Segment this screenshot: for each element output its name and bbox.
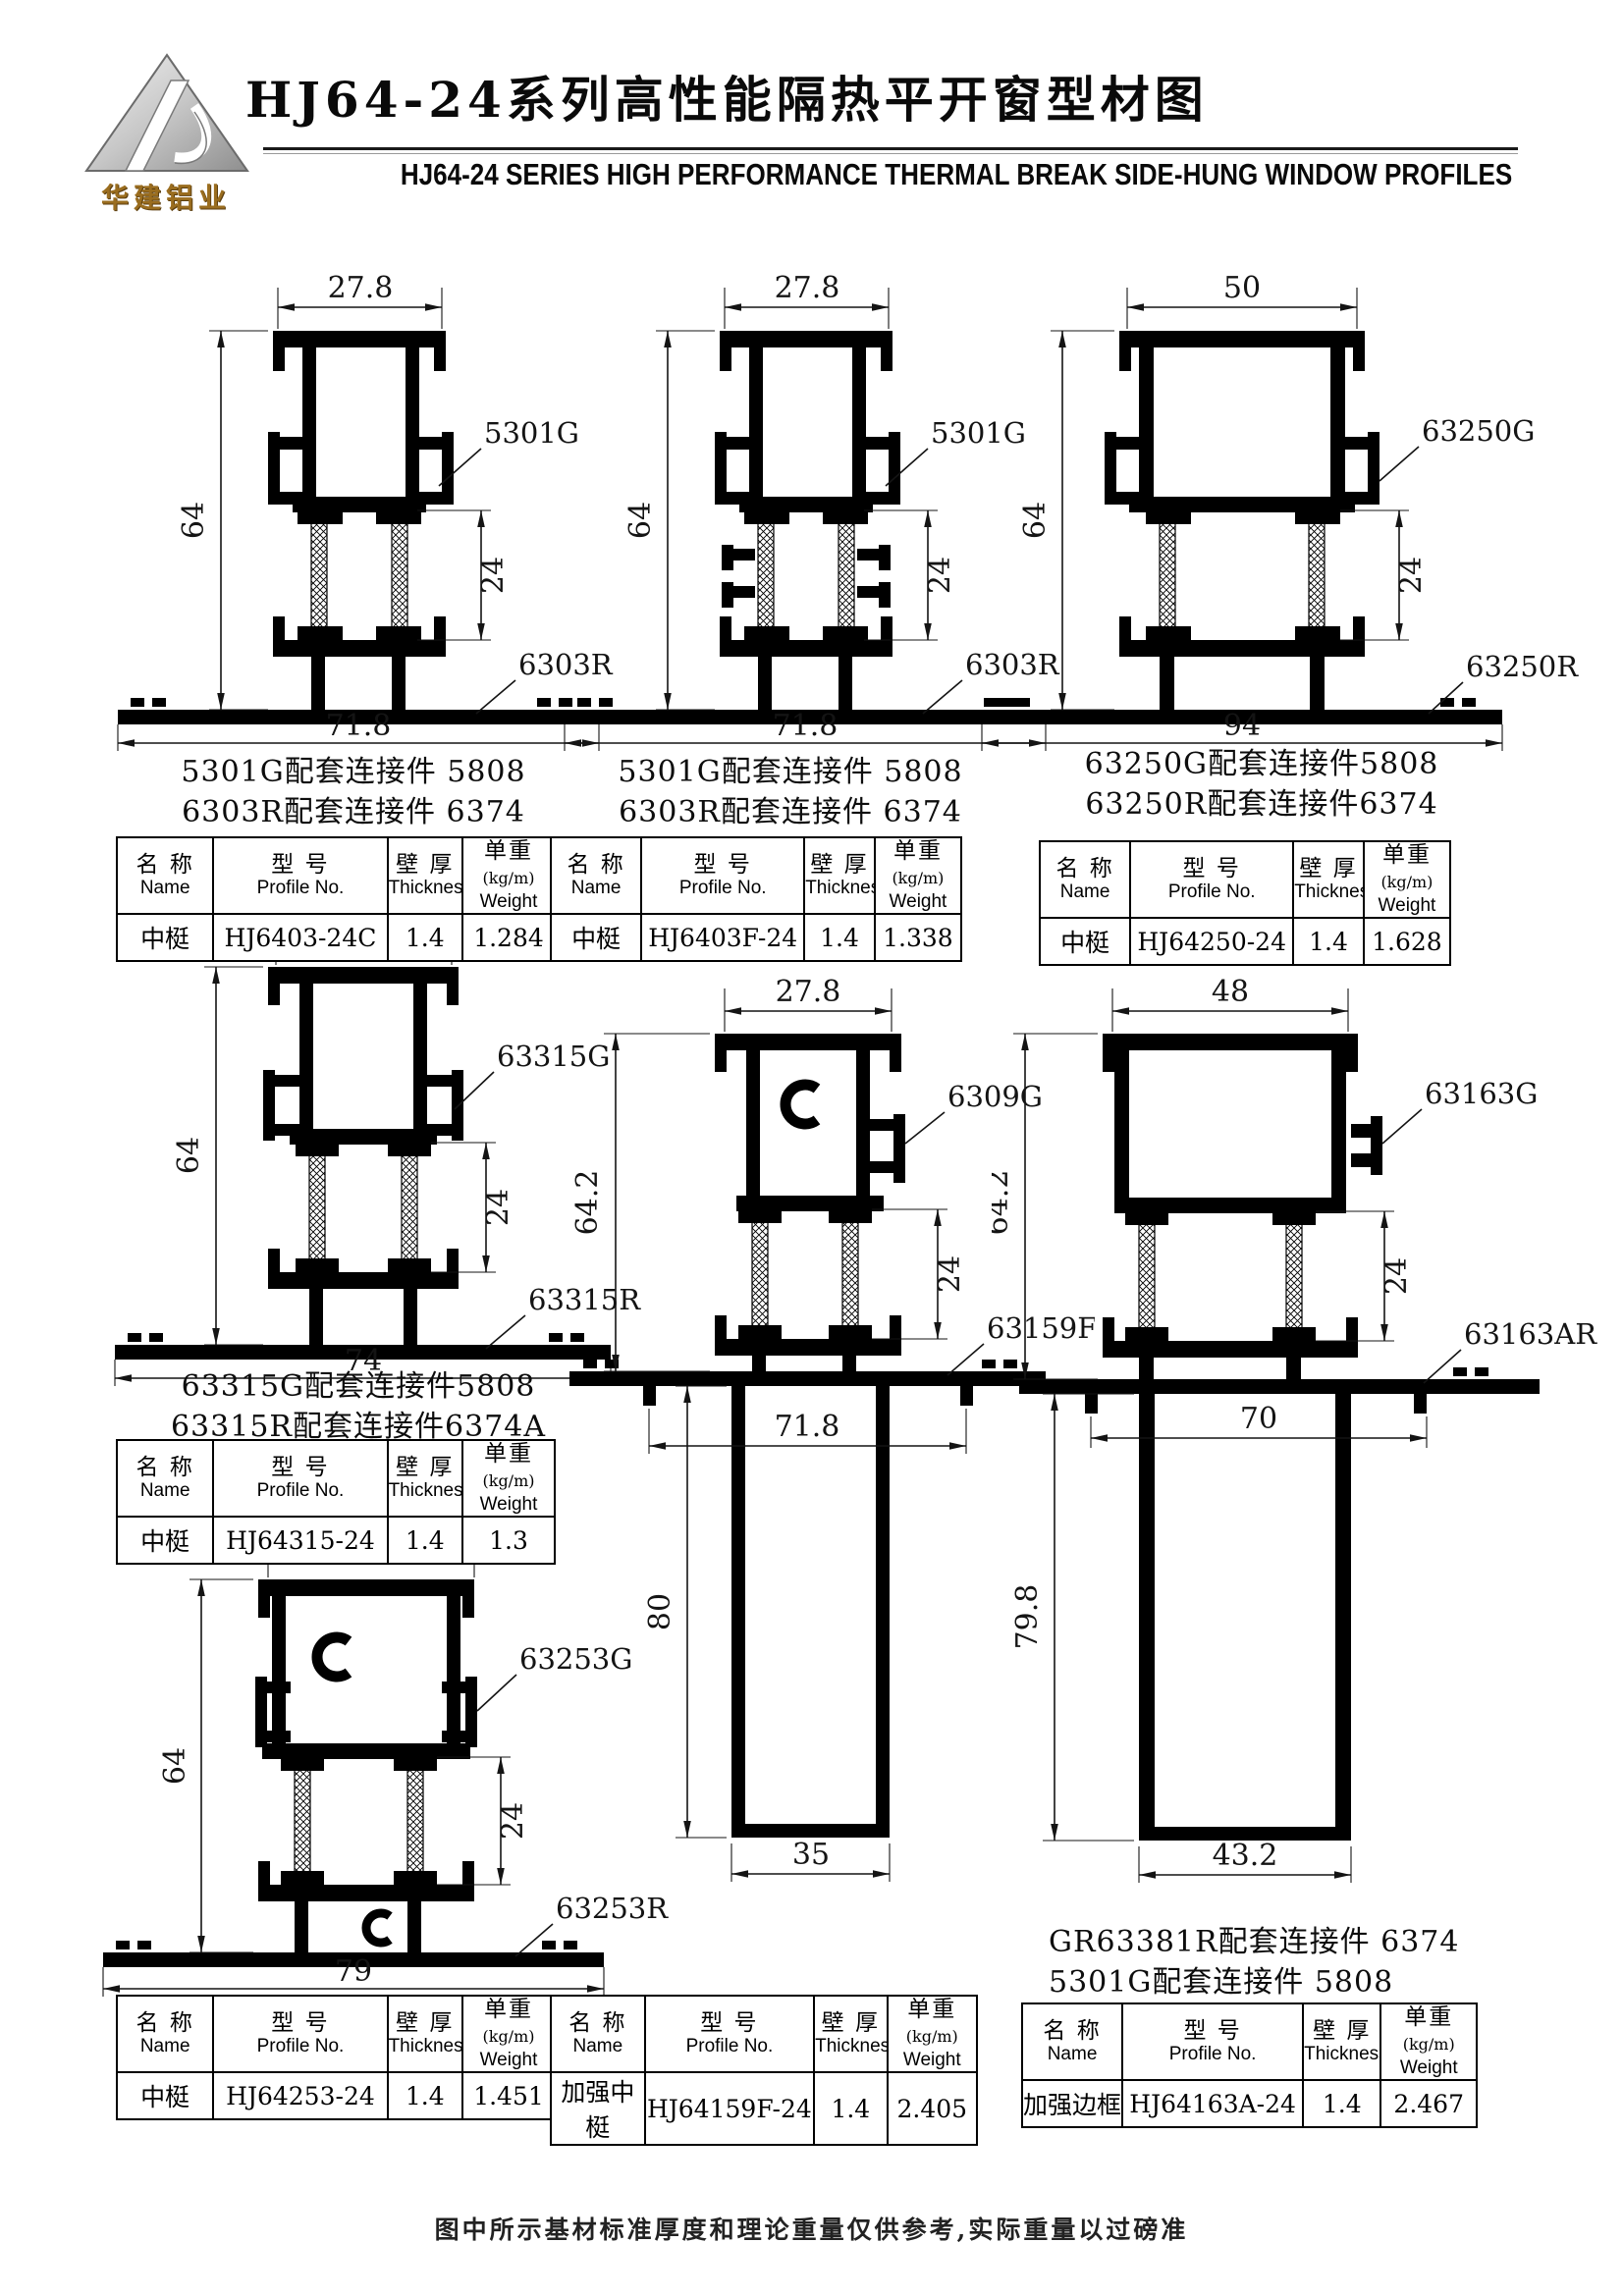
spec-table-1: 名 称Name 型 号Profile No. 壁 厚Thickness 单重(k… xyxy=(116,836,556,962)
dim-flange: 71.8 xyxy=(775,1410,840,1444)
table-header-row: 名 称Name 型 号Profile No. 壁 厚Thickness 单重(k… xyxy=(117,1440,555,1517)
dim-break: 24 xyxy=(496,1802,530,1840)
dim-break: 24 xyxy=(481,1189,515,1226)
dim-break: 24 xyxy=(1394,557,1429,594)
table-header-row: 名 称Name 型 号Profile No. 壁 厚Thickness 单重(k… xyxy=(551,1996,977,2072)
dim-top: 50 xyxy=(1223,271,1261,305)
title-divider-shadow xyxy=(263,153,1518,154)
connector-note-7: GR63381R配套连接件 6374 5301G配套连接件 5808 xyxy=(1049,1922,1520,2002)
part-label-r: 63253R xyxy=(556,1892,669,1925)
dim-break: 24 xyxy=(933,1255,967,1293)
note-line: 63250G配套连接件5808 xyxy=(1055,744,1468,784)
note-line: 63250R配套连接件6374 xyxy=(1055,784,1468,825)
spec-table-3: 名 称Name 型 号Profile No. 壁 厚Thickness 单重(k… xyxy=(1039,840,1451,966)
spec-table-6: 名 称Name 型 号Profile No. 壁 厚Thickness 单重(k… xyxy=(550,1995,978,2146)
page-subtitle-text: HJ64-24 SERIES HIGH PERFORMANCE THERMAL … xyxy=(401,157,1512,192)
dim-break: 24 xyxy=(923,557,957,594)
table-row: 中梃HJ64253-241.41.451 xyxy=(117,2072,555,2119)
dim-bottom: 71.8 xyxy=(773,709,839,743)
profile-drawing-6: 48 64.2 24 70 79.8 43.2 63163G 63163AR xyxy=(992,967,1600,1939)
table-row: 加强边框HJ64163A-241.42.467 xyxy=(1022,2080,1477,2127)
profile-drawing-7: 35 64 24 79 63253G 63253R xyxy=(83,1520,692,2015)
note-line: 5301G配套连接件 5808 xyxy=(584,752,997,792)
connector-note-3: 63250G配套连接件5808 63250R配套连接件6374 xyxy=(1055,744,1468,825)
table-header-row: 名 称Name 型 号Profile No. 壁 厚Thickness 单重(k… xyxy=(117,837,555,914)
dim-top: 48 xyxy=(1212,975,1249,1009)
dim-top: 27.8 xyxy=(775,271,840,305)
spec-table-4: 名 称Name 型 号Profile No. 壁 厚Thickness 单重(k… xyxy=(116,1439,556,1565)
table-row: 中梃HJ64250-241.41.628 xyxy=(1040,918,1450,965)
page-subtitle: HJ64-24 SERIES HIGH PERFORMANCE THERMAL … xyxy=(295,157,1591,192)
part-label-g: 63163G xyxy=(1425,1077,1538,1110)
table-header-row: 名 称Name 型 号Profile No. 壁 厚Thickness 单重(k… xyxy=(551,837,961,914)
dim-height: 64 xyxy=(172,1137,206,1174)
dim-box-height: 79.8 xyxy=(1010,1584,1045,1650)
logo-icon xyxy=(81,49,253,177)
dim-height: 64 xyxy=(1018,502,1053,539)
dim-top: 27.8 xyxy=(776,975,841,1009)
spec-table-7: 名 称Name 型 号Profile No. 壁 厚Thickness 单重(k… xyxy=(1021,2002,1478,2128)
dim-break: 24 xyxy=(476,557,511,594)
title-divider xyxy=(263,147,1518,150)
logo-text: 华建铝业 xyxy=(73,177,259,216)
dim-break: 24 xyxy=(1380,1257,1414,1295)
table-header-row: 名 称Name 型 号Profile No. 壁 厚Thickness 单重(k… xyxy=(1022,2003,1477,2080)
dim-height: 64.2 xyxy=(992,1170,1015,1236)
dim-top: 27.8 xyxy=(328,271,394,305)
connector-note-1: 5301G配套连接件 5808 6303R配套连接件 6374 xyxy=(147,752,560,832)
table-row: 中梃HJ6403F-241.41.338 xyxy=(551,914,961,961)
dim-height: 64 xyxy=(177,502,211,539)
profile-shape xyxy=(982,331,1502,724)
table-header-row: 名 称Name 型 号Profile No. 壁 厚Thickness 单重(k… xyxy=(1040,841,1450,918)
spec-table-2: 名 称Name 型 号Profile No. 壁 厚Thickness 单重(k… xyxy=(550,836,962,962)
part-label-r: 63163AR xyxy=(1464,1317,1597,1351)
table-row: 加强中梃HJ64159F-241.42.405 xyxy=(551,2072,977,2145)
dim-box-width: 43.2 xyxy=(1213,1839,1278,1873)
part-label-r: 63250R xyxy=(1466,650,1579,683)
table-header-row: 名 称Name 型 号Profile No. 壁 厚Thickness 单重(k… xyxy=(117,1996,555,2072)
dim-bottom: 94 xyxy=(1223,709,1261,743)
note-line: 63315G配套连接件5808 xyxy=(147,1366,569,1407)
note-line: GR63381R配套连接件 6374 xyxy=(1049,1922,1520,1962)
note-line: 6303R配套连接件 6374 xyxy=(147,792,560,832)
dim-bottom: 79 xyxy=(335,1954,372,1989)
dim-height: 64 xyxy=(158,1747,192,1785)
part-label-g: 63253G xyxy=(519,1642,632,1676)
dim-bottom: 71.8 xyxy=(326,709,392,743)
dim-flange: 70 xyxy=(1240,1402,1277,1436)
table-row: 中梃HJ64315-241.41.3 xyxy=(117,1517,555,1564)
connector-note-2: 5301G配套连接件 5808 6303R配套连接件 6374 xyxy=(584,752,997,832)
dim-height: 64.2 xyxy=(570,1170,605,1236)
part-label-g: 63250G xyxy=(1422,414,1535,448)
profile-shape xyxy=(1019,1034,1540,1841)
table-row: 中梃HJ6403-24C1.41.284 xyxy=(117,914,555,961)
page-title: HJ64-24系列高性能隔热平开窗型材图 xyxy=(245,61,1188,132)
note-line: 5301G配套连接件 5808 xyxy=(1049,1962,1520,2002)
connector-note-4: 63315G配套连接件5808 63315R配套连接件6374A xyxy=(147,1366,569,1447)
footer-note: 图中所示基材标准厚度和理论重量仅供参考,实际重量以过磅准 xyxy=(0,2211,1623,2246)
profile-drawing-3: 50 64 24 94 63250G 63250R xyxy=(967,260,1596,761)
dim-box-width: 35 xyxy=(792,1838,830,1872)
note-line: 6303R配套连接件 6374 xyxy=(584,792,997,832)
spec-table-5: 名 称Name 型 号Profile No. 壁 厚Thickness 单重(k… xyxy=(116,1995,556,2120)
dim-height: 64 xyxy=(623,502,658,539)
note-line: 5301G配套连接件 5808 xyxy=(147,752,560,792)
